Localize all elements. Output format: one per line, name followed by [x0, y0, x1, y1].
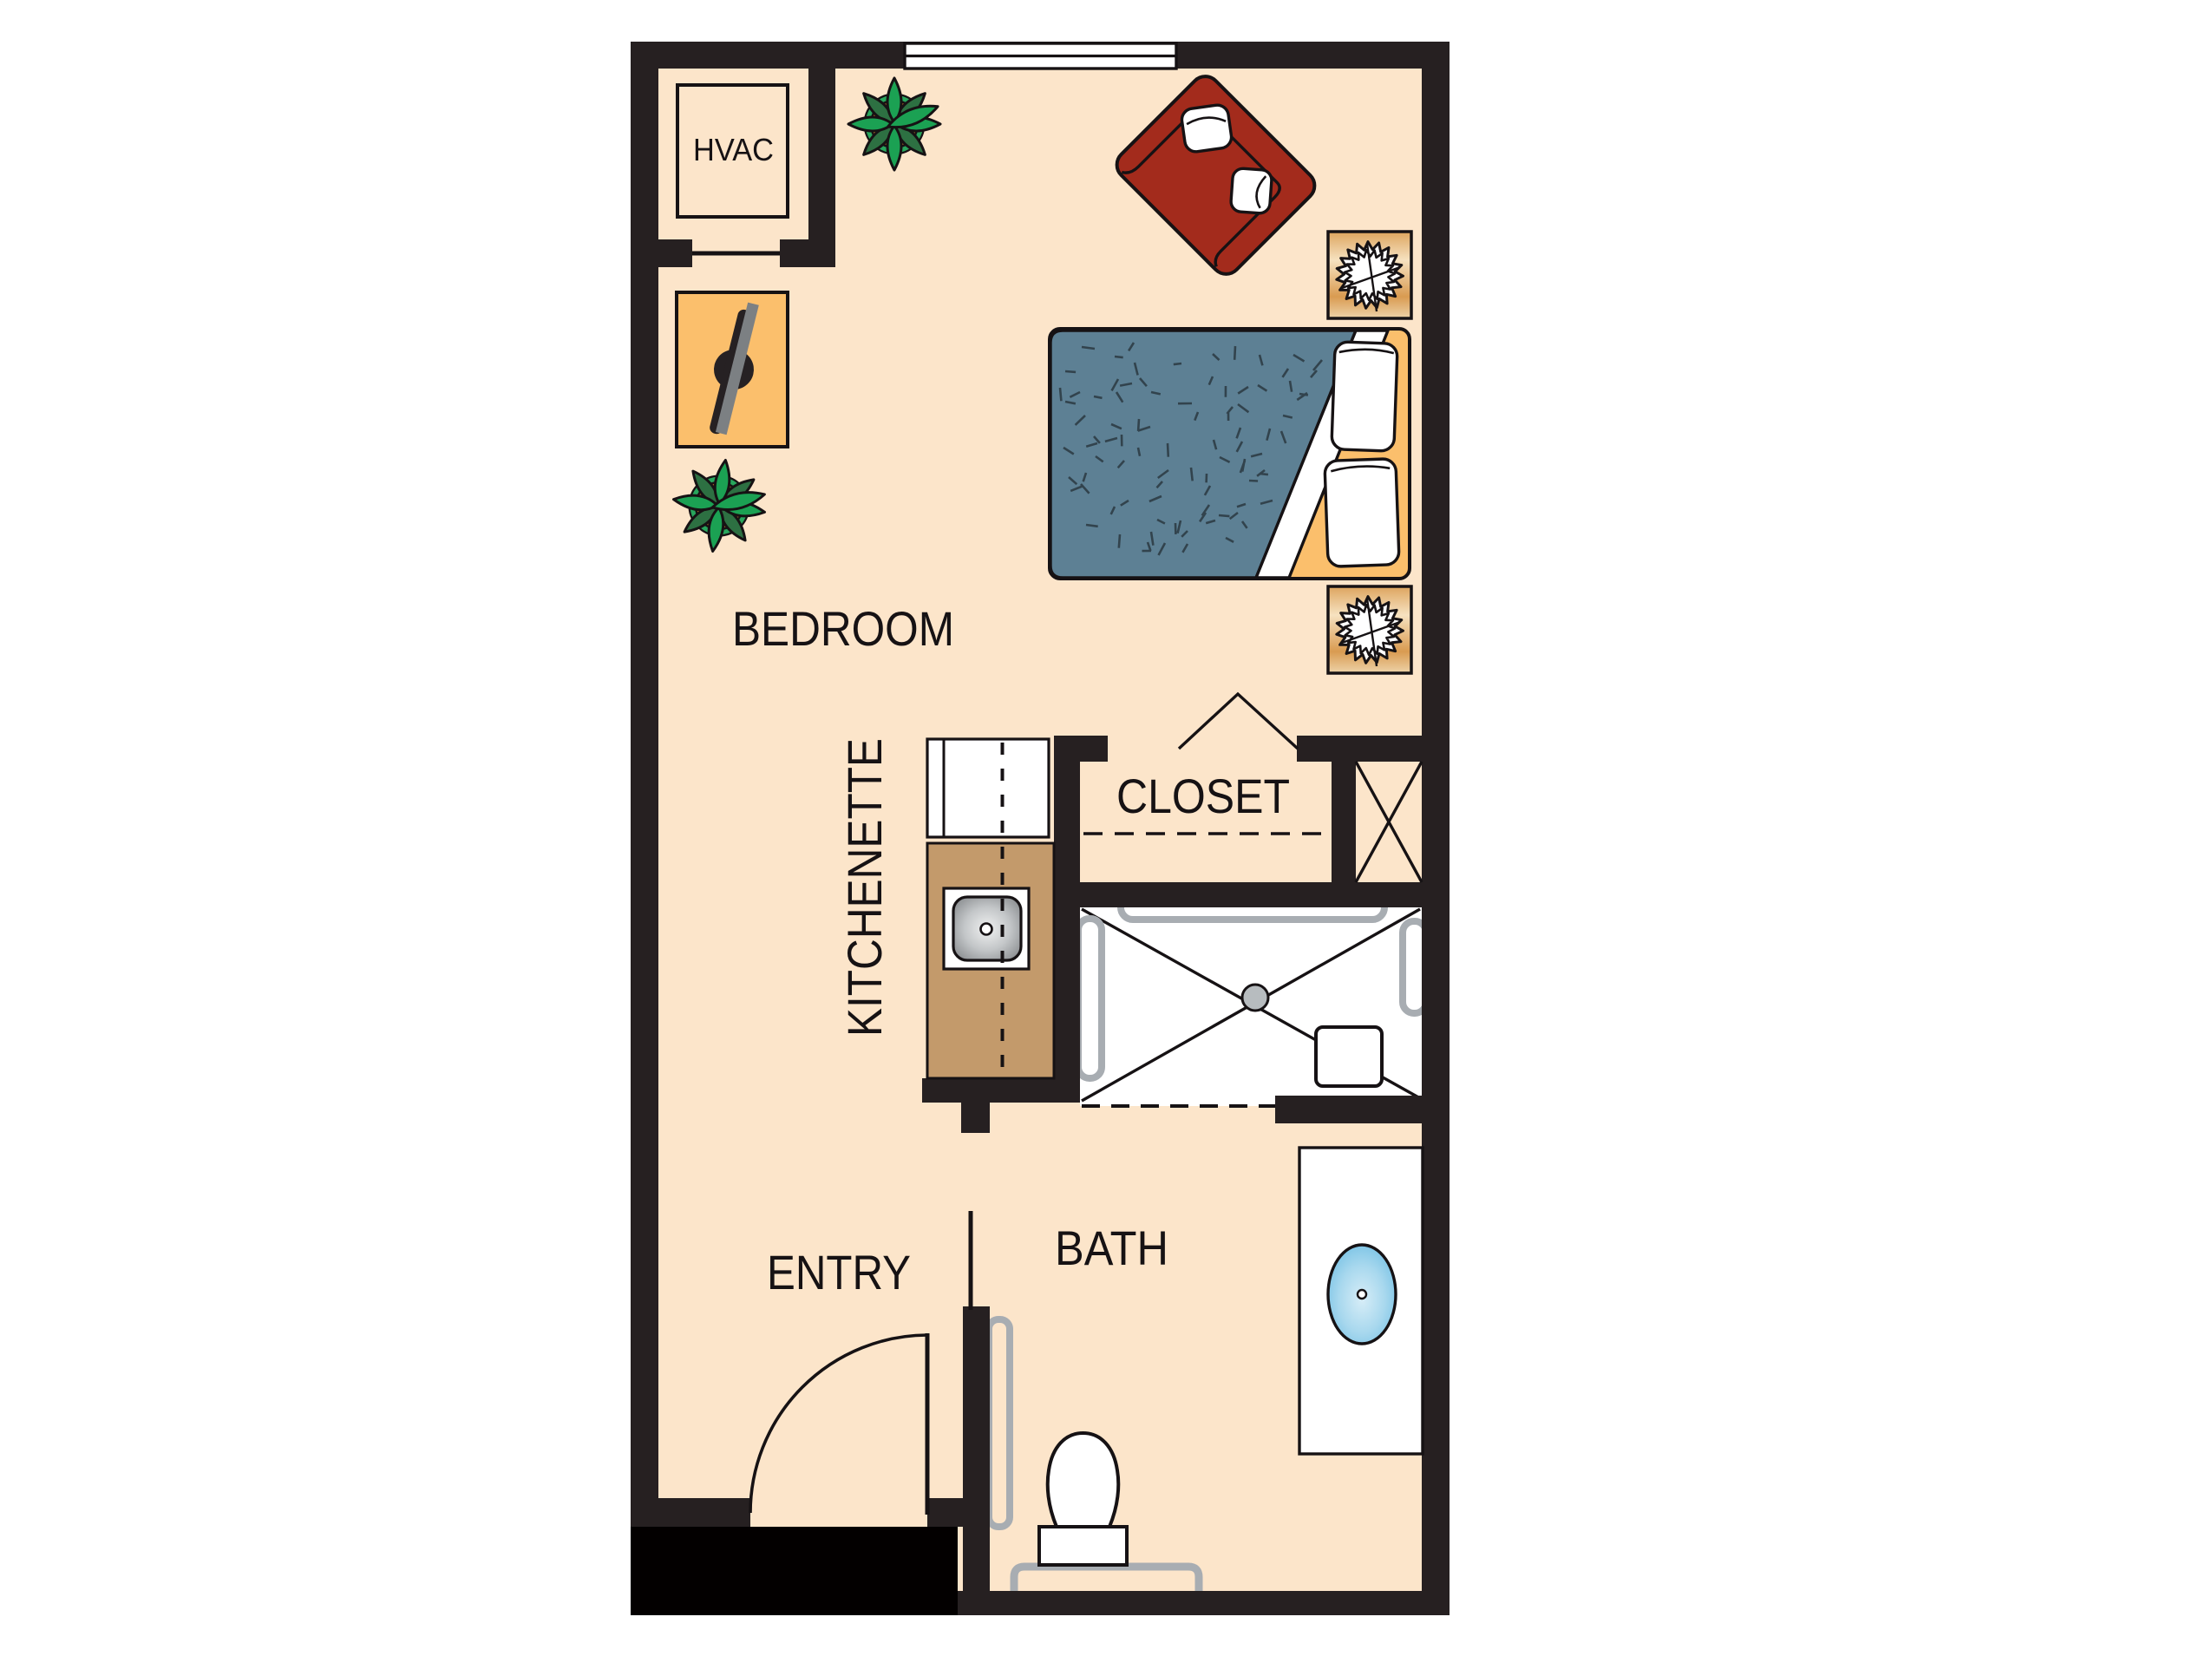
svg-text:BATH: BATH: [1055, 1221, 1168, 1275]
svg-text:KITCHENETTE: KITCHENETTE: [837, 738, 892, 1037]
svg-text:ENTRY: ENTRY: [767, 1245, 911, 1299]
svg-text:BEDROOM: BEDROOM: [732, 601, 954, 656]
svg-text:CLOSET: CLOSET: [1116, 769, 1290, 823]
svg-text:HVAC: HVAC: [693, 132, 774, 167]
